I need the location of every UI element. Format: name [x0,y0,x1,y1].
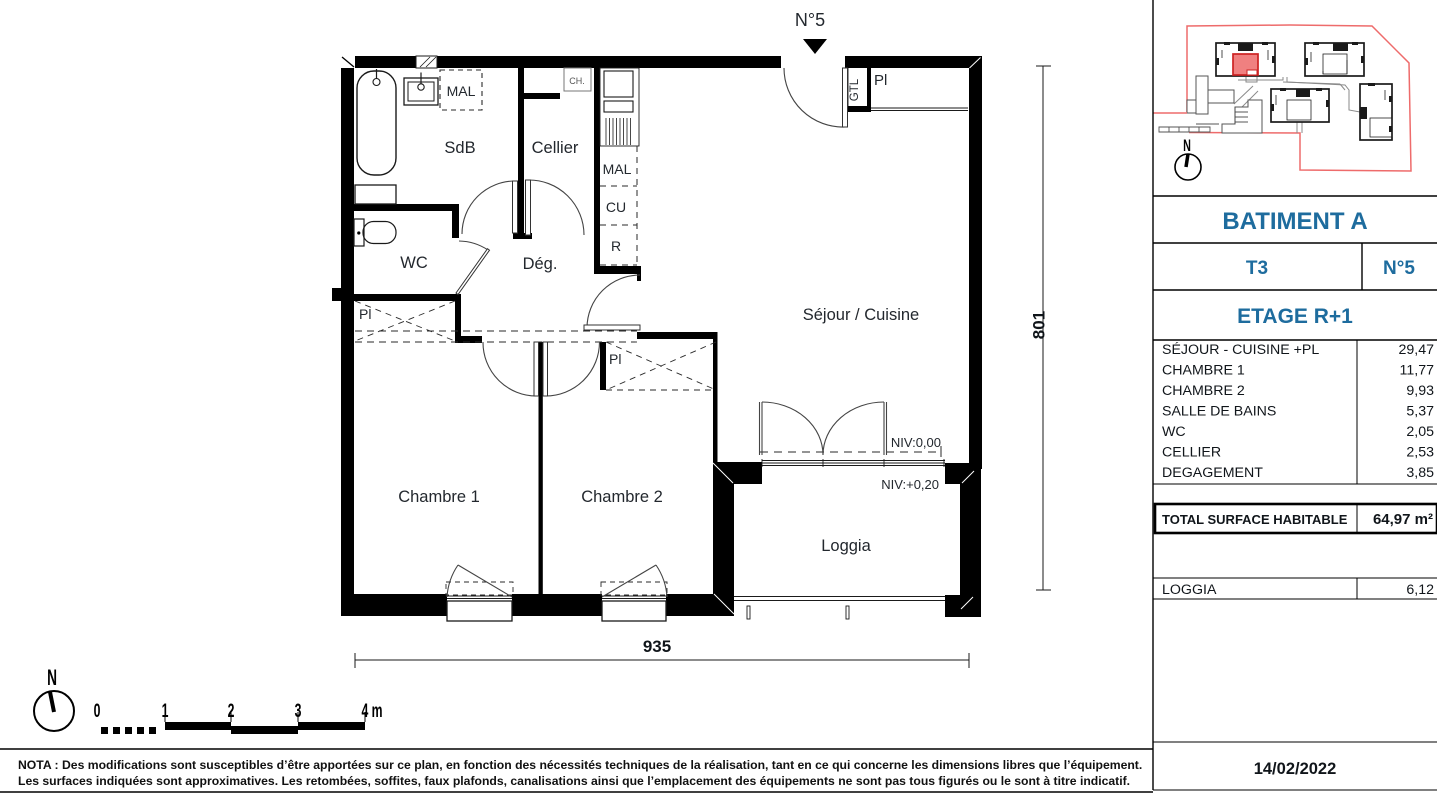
svg-text:64,97 m²: 64,97 m² [1373,511,1433,528]
svg-text:801: 801 [1030,311,1049,339]
svg-text:5,37: 5,37 [1406,404,1434,420]
svg-text:2,05: 2,05 [1406,424,1434,440]
svg-text:Chambre 2: Chambre 2 [581,488,663,506]
svg-text:29,47: 29,47 [1398,342,1434,358]
svg-text:Chambre 1: Chambre 1 [398,488,480,506]
svg-text:Les surfaces indiquées sont ap: Les surfaces indiquées sont approximativ… [18,774,1130,788]
svg-text:3,85: 3,85 [1406,465,1434,481]
svg-text:11,77: 11,77 [1400,363,1435,379]
svg-text:6,12: 6,12 [1406,582,1434,598]
svg-text:Loggia: Loggia [821,537,871,555]
svg-text:NOTA : Des modifications sont: NOTA : Des modifications sont susceptibl… [18,758,1142,772]
svg-text:935: 935 [643,637,671,656]
svg-text:GTL: GTL [849,78,861,101]
svg-text:LOGGIA: LOGGIA [1162,582,1217,598]
svg-text:SÉJOUR - CUISINE +PL: SÉJOUR - CUISINE +PL [1162,341,1319,358]
svg-text:N: N [1183,136,1191,155]
svg-text:N°5: N°5 [795,10,825,30]
svg-text:BATIMENT A: BATIMENT A [1222,208,1367,235]
svg-text:CHAMBRE 2: CHAMBRE 2 [1162,383,1245,399]
svg-text:Pl: Pl [359,306,371,322]
svg-text:CELLIER: CELLIER [1162,445,1221,461]
svg-text:CHAMBRE 1: CHAMBRE 1 [1162,363,1245,379]
svg-text:9,93: 9,93 [1406,383,1434,399]
svg-text:Pl: Pl [874,72,887,89]
svg-text:SdB: SdB [444,139,475,157]
svg-text:Cellier: Cellier [532,139,579,157]
svg-text:CU: CU [606,199,626,215]
svg-text:NIV:+0,20: NIV:+0,20 [881,477,939,492]
svg-text:T3: T3 [1246,258,1268,279]
svg-text:NIV:0,00: NIV:0,00 [891,435,941,450]
svg-text:Pl: Pl [609,351,621,367]
svg-text:SALLE DE BAINS: SALLE DE BAINS [1162,404,1276,420]
svg-text:Dég.: Dég. [523,255,558,273]
svg-text:CH.: CH. [569,76,585,86]
svg-text:2,53: 2,53 [1406,445,1434,461]
svg-text:14/02/2022: 14/02/2022 [1254,760,1337,778]
svg-text:Séjour / Cuisine: Séjour / Cuisine [803,306,919,324]
svg-text:WC: WC [400,254,428,272]
svg-text:TOTAL SURFACE HABITABLE: TOTAL SURFACE HABITABLE [1162,512,1348,527]
svg-text:N°5: N°5 [1383,258,1415,279]
svg-text:MAL: MAL [447,83,476,99]
svg-text:MAL: MAL [603,161,632,177]
svg-text:DEGAGEMENT: DEGAGEMENT [1162,465,1263,481]
svg-text:ETAGE R+1: ETAGE R+1 [1237,305,1353,328]
svg-text:R: R [611,238,621,254]
svg-text:WC: WC [1162,424,1186,440]
svg-text:0: 0 [94,702,101,722]
svg-text:N: N [47,666,57,690]
